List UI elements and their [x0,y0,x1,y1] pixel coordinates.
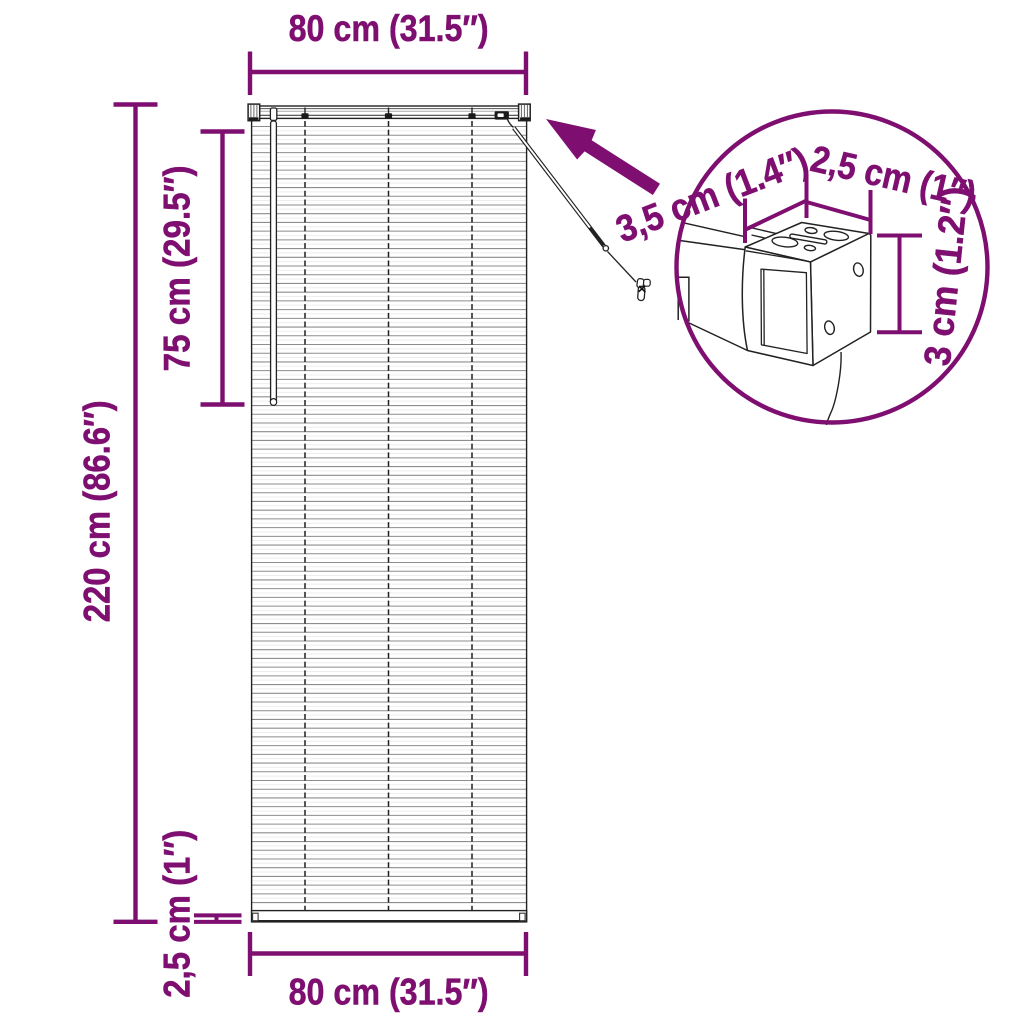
svg-text:220 cm (86.6″): 220 cm (86.6″) [76,400,118,622]
svg-text:80 cm (31.5″): 80 cm (31.5″) [289,7,489,49]
svg-text:2,5 cm (1″): 2,5 cm (1″) [156,830,198,998]
svg-text:75 cm (29.5″): 75 cm (29.5″) [155,165,197,371]
svg-text:80 cm (31.5″): 80 cm (31.5″) [289,971,489,1013]
